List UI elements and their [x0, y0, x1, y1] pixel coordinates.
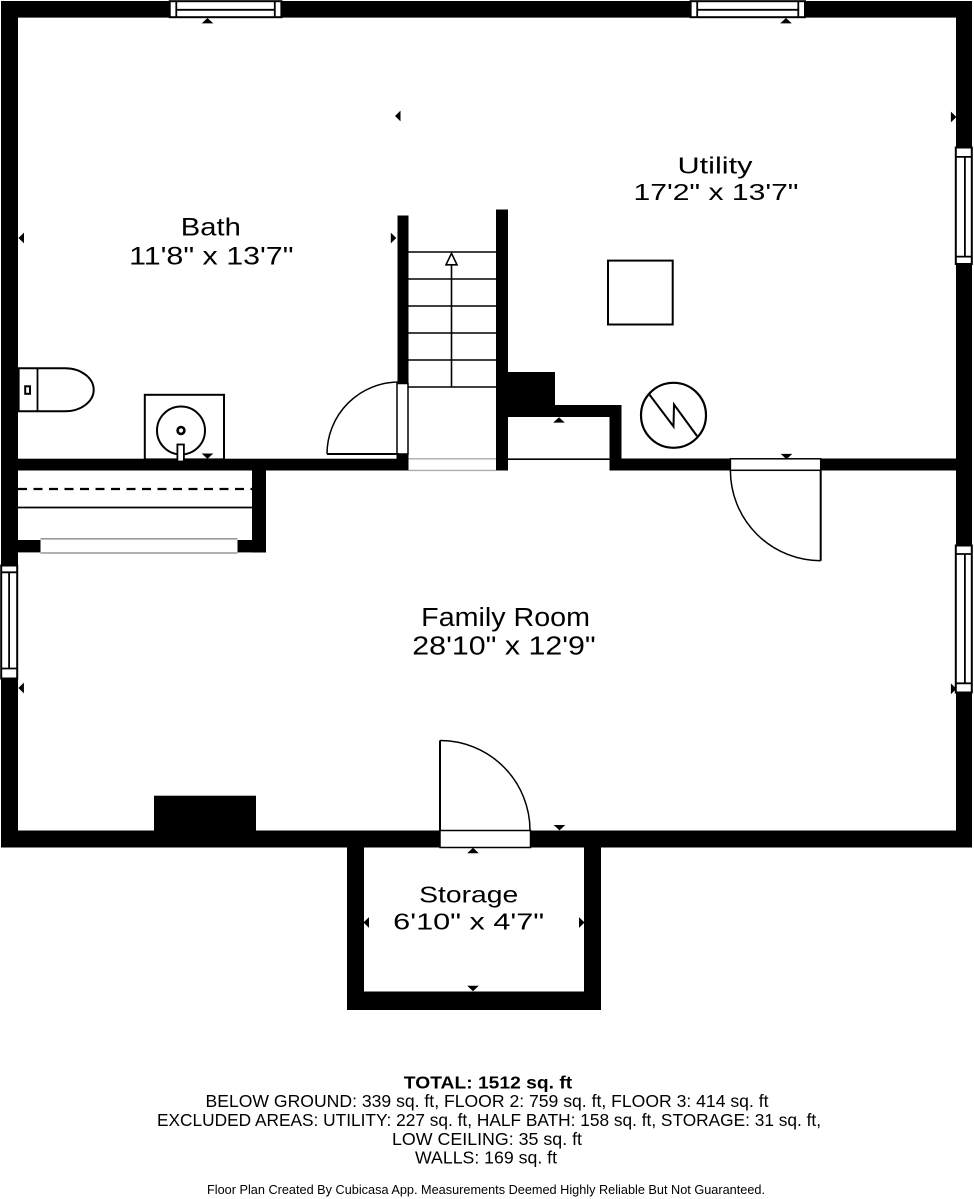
- svg-text:BELOW GROUND: 339 sq. ft, FLOO: BELOW GROUND: 339 sq. ft, FLOOR 2: 759 s…: [206, 1091, 769, 1111]
- svg-text:EXCLUDED AREAS: UTILITY: 227 s: EXCLUDED AREAS: UTILITY: 227 sq. ft, HAL…: [157, 1110, 821, 1130]
- svg-text:LOW CEILING: 35 sq. ft: LOW CEILING: 35 sq. ft: [392, 1129, 582, 1149]
- svg-text:Bath: Bath: [181, 214, 241, 242]
- svg-text:Utility: Utility: [678, 152, 753, 178]
- svg-text:28'10" x 12'9": 28'10" x 12'9": [412, 630, 595, 660]
- svg-text:11'8" x 13'7": 11'8" x 13'7": [129, 243, 293, 271]
- svg-text:17'2" x 13'7": 17'2" x 13'7": [634, 179, 799, 205]
- svg-text:Family Room: Family Room: [421, 602, 590, 632]
- svg-text:Floor Plan Created By Cubicasa: Floor Plan Created By Cubicasa App. Meas…: [207, 1183, 765, 1197]
- svg-text:TOTAL: 1512 sq. ft: TOTAL: 1512 sq. ft: [404, 1073, 573, 1093]
- svg-text:Storage: Storage: [419, 882, 518, 908]
- svg-text:6'10" x 4'7": 6'10" x 4'7": [393, 909, 544, 935]
- svg-text:WALLS: 169 sq. ft: WALLS: 169 sq. ft: [415, 1148, 557, 1168]
